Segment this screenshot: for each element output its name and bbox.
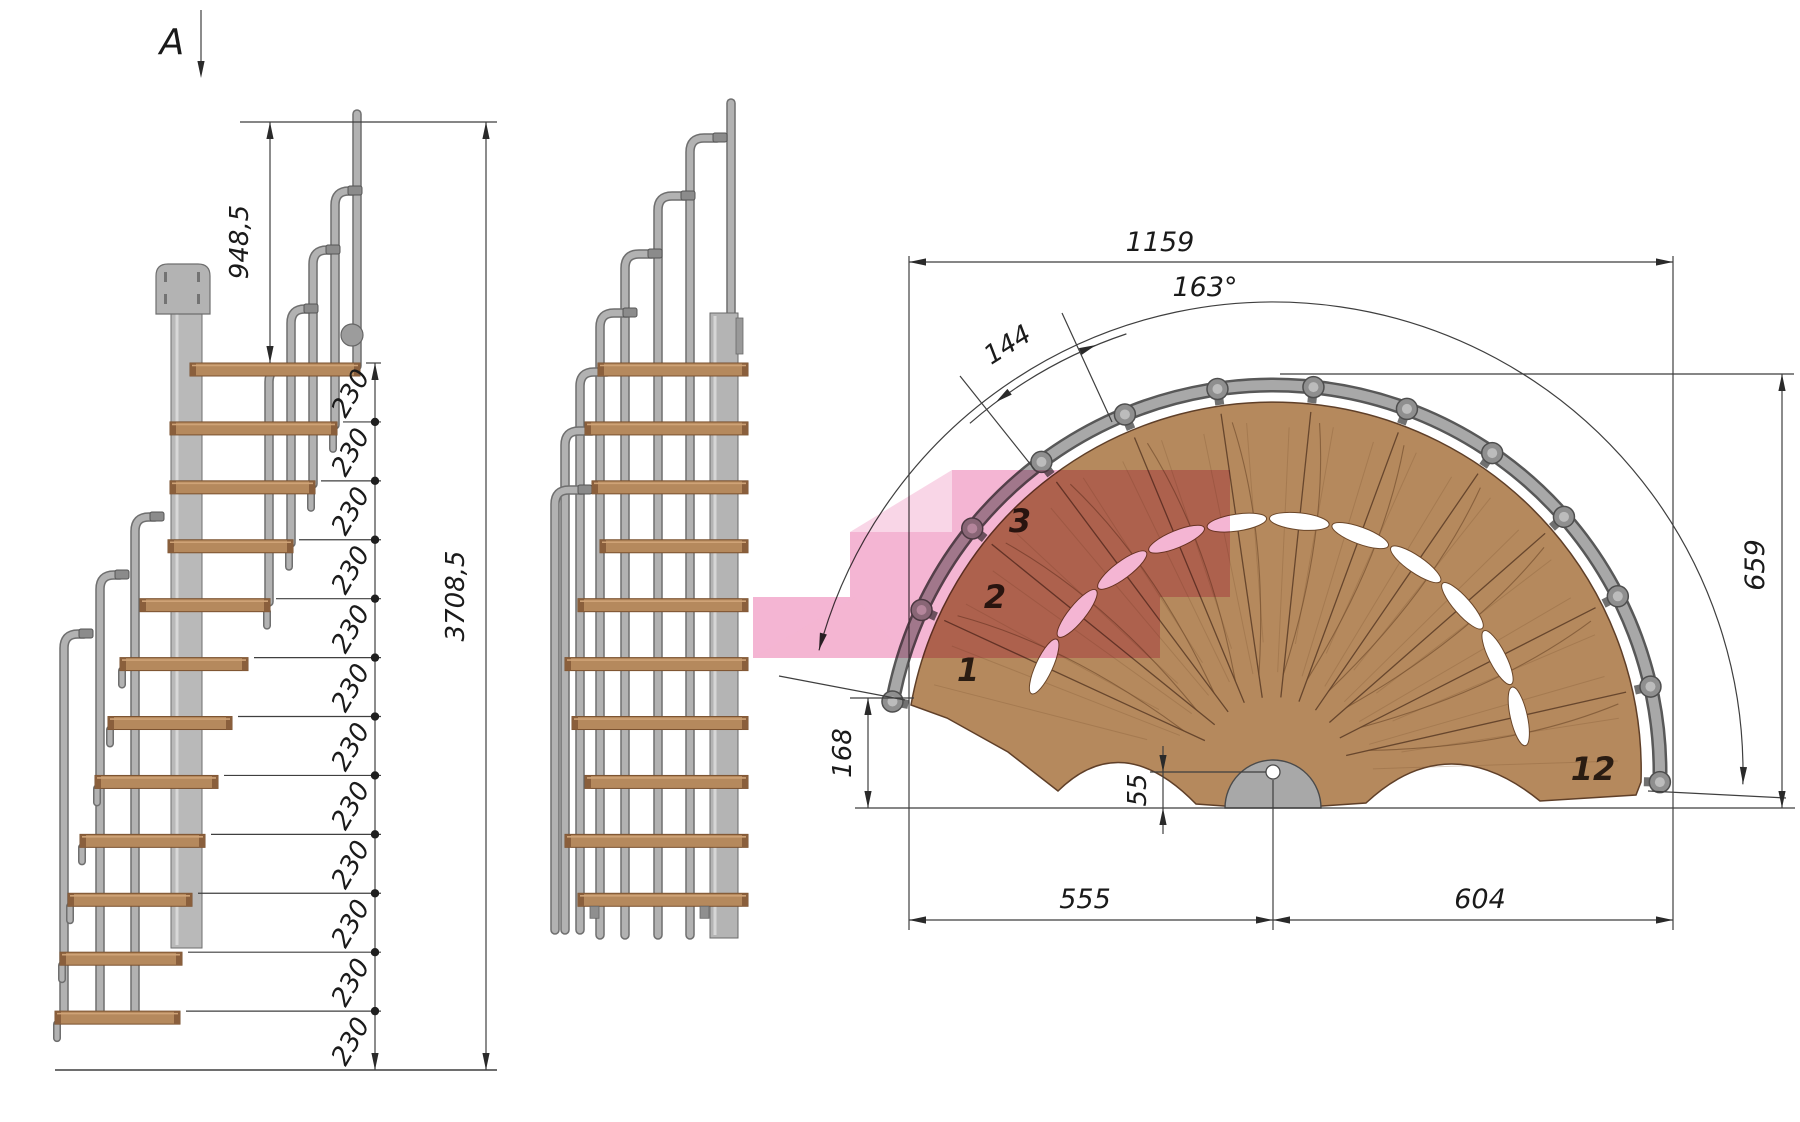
step-number-12: 12 xyxy=(1571,750,1616,788)
rail-clamp xyxy=(115,570,129,579)
rise-dimension-labels: 230230230230230230230230230230230230 xyxy=(326,364,377,1070)
rail-clamp xyxy=(79,629,93,638)
pole-offset-label: 55 xyxy=(1123,773,1153,806)
rail-clamp xyxy=(623,308,637,317)
chain-dot xyxy=(371,948,379,956)
tick-144-a xyxy=(960,376,1035,470)
chain-dot xyxy=(371,771,379,779)
baluster-knob-top xyxy=(1645,682,1655,692)
bracket-slot xyxy=(197,272,200,282)
rail-clamp xyxy=(681,191,695,200)
dimension-arrowhead xyxy=(1273,916,1290,923)
pole-centre-hole xyxy=(1266,765,1280,779)
technical-drawing-page: A 948,5 3708,5 1159 144 163° 659 168 55 … xyxy=(0,0,1800,1122)
tick-144-b xyxy=(1062,313,1112,422)
tube-foot xyxy=(700,906,709,918)
baluster-knob-top xyxy=(1120,409,1130,419)
baluster-knob-top xyxy=(1212,384,1222,394)
dimension-arrowhead xyxy=(909,916,926,923)
rail-clamp xyxy=(348,186,362,195)
baluster-knob-top xyxy=(1559,512,1569,522)
rise-label: 230 xyxy=(326,482,377,540)
rail-clamp xyxy=(304,304,318,313)
dimension-arrowhead xyxy=(371,1053,378,1070)
dimension-arrowhead xyxy=(482,1053,489,1070)
railing-tube xyxy=(135,517,155,1012)
dimension-arrowhead xyxy=(482,122,489,139)
pole-bracket-plate xyxy=(736,318,743,354)
baluster-knob-top xyxy=(1613,591,1623,601)
highlight-step-2 xyxy=(850,532,1230,597)
rail-clamp xyxy=(326,245,340,254)
angle-label: 163° xyxy=(1172,272,1237,303)
section-marker-label: A xyxy=(158,22,185,63)
bracket-slot xyxy=(197,294,200,304)
highlight-wedge-b xyxy=(850,470,952,532)
rise-label: 230 xyxy=(326,836,377,894)
rise-label: 230 xyxy=(326,659,377,717)
tick-angle-left xyxy=(779,676,905,700)
right-span-label: 604 xyxy=(1454,884,1506,915)
dimension-arrowhead xyxy=(1256,916,1273,923)
chain-dot xyxy=(371,653,379,661)
rail-height-label: 948,5 xyxy=(225,205,255,279)
bracket-slot xyxy=(164,272,167,282)
dimension-arrowhead xyxy=(864,791,871,808)
rise-label: 230 xyxy=(326,777,377,835)
dimension-arrowhead xyxy=(1159,808,1166,825)
staircase-drawing: A 948,5 3708,5 1159 144 163° 659 168 55 … xyxy=(0,0,1800,1122)
handrail-segment xyxy=(1227,385,1304,388)
baluster-knob-top xyxy=(1036,457,1046,467)
step-highlight-overlay xyxy=(753,470,1230,658)
overall-width-label: 1159 xyxy=(1126,227,1195,258)
rise-label: 230 xyxy=(326,718,377,776)
rail-clamp xyxy=(648,249,662,258)
front-elevation-railing xyxy=(555,103,731,935)
dimension-arrowhead xyxy=(266,122,273,139)
chain-dot xyxy=(371,477,379,485)
dimension-arrowhead xyxy=(1656,916,1673,923)
rail-clamp xyxy=(713,133,727,142)
bracket-slot xyxy=(164,294,167,304)
baluster-knob-top xyxy=(1487,448,1497,458)
rise-label: 230 xyxy=(326,541,377,599)
rise-label: 230 xyxy=(326,954,377,1012)
tube-foot xyxy=(590,906,599,918)
rise-label: 230 xyxy=(326,895,377,953)
dimension-arrowhead xyxy=(266,346,273,363)
chain-dot xyxy=(371,1007,379,1015)
chain-dot xyxy=(371,830,379,838)
baluster-knob-top xyxy=(1402,404,1412,414)
baluster-knob-top xyxy=(1308,382,1318,392)
railing-tube xyxy=(100,575,120,1012)
rise-label: 230 xyxy=(326,600,377,658)
wall-flange xyxy=(341,324,363,346)
left-span-label: 555 xyxy=(1059,884,1111,915)
chain-dot xyxy=(371,594,379,602)
dimension-arrowhead xyxy=(1656,258,1673,265)
chain-dot xyxy=(371,889,379,897)
dimension-arrowhead xyxy=(1778,374,1785,391)
baluster-knob-top xyxy=(1655,777,1665,787)
depth-label: 659 xyxy=(1740,539,1771,591)
rail-clamp xyxy=(150,512,164,521)
dimension-arrowhead xyxy=(1740,767,1747,784)
rise-label: 230 xyxy=(326,1013,377,1071)
wall-bracket xyxy=(156,264,210,314)
chain-dot xyxy=(371,418,379,426)
railing-tube xyxy=(658,196,685,935)
tick-angle-right xyxy=(1648,791,1786,798)
chain-dot xyxy=(371,712,379,720)
dimension-arrowhead xyxy=(909,258,926,265)
dimension-arrowhead xyxy=(197,61,204,78)
dimension-arrowhead xyxy=(1778,791,1785,808)
rail-clamp xyxy=(578,485,592,494)
railing-tube xyxy=(625,254,652,935)
first-step-offset-label: 168 xyxy=(828,728,858,778)
dimension-arrowhead xyxy=(1079,345,1096,355)
chain-dot xyxy=(371,536,379,544)
dimension-arrowhead xyxy=(864,698,871,715)
total-height-label: 3708,5 xyxy=(441,551,471,642)
tread-width-label: 144 xyxy=(979,319,1037,371)
